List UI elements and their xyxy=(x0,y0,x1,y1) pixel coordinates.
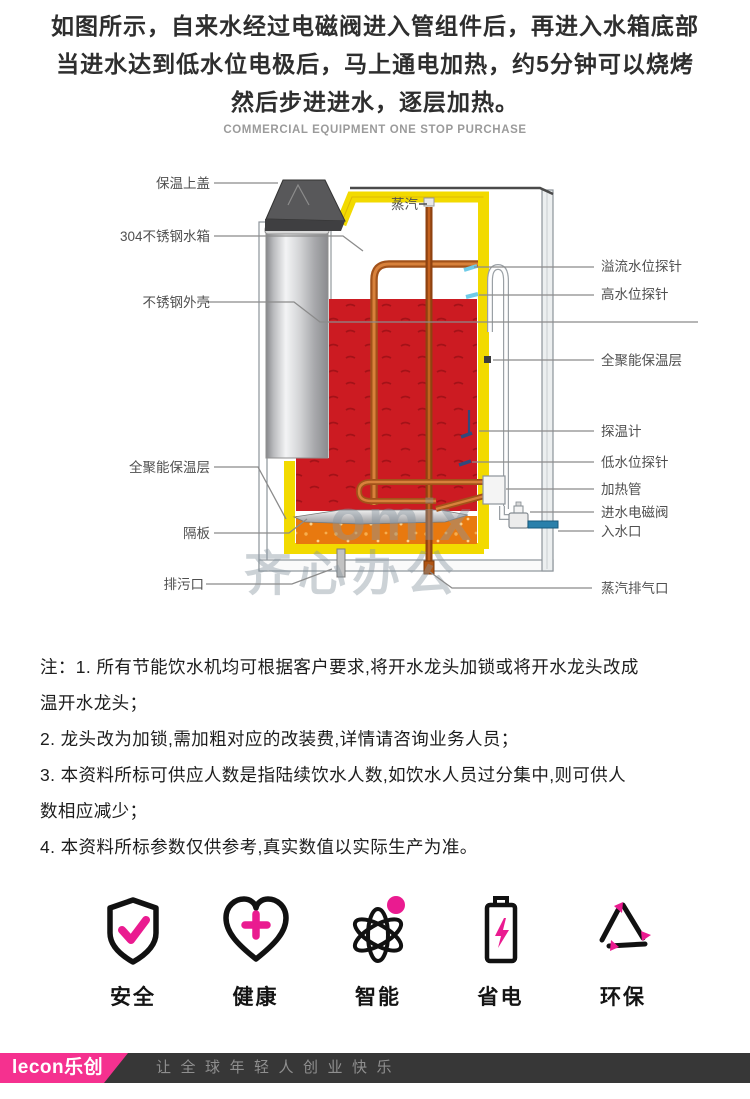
feature-label: 环保 xyxy=(600,981,646,1011)
intro-line-1: 如图所示，自来水经过电磁阀进入管组件后，再进入水箱底部 xyxy=(0,7,750,45)
heart-plus-icon xyxy=(216,891,296,971)
label-304-tank: 304不锈钢水箱 xyxy=(120,229,210,244)
note-line: 注：1. 所有节能饮水机均可根据客户要求,将开水龙头加锁或将开水龙头改成 xyxy=(40,649,710,685)
atom-icon xyxy=(338,891,418,971)
feature-safety: 安全 xyxy=(78,891,188,1011)
intro-subtitle: COMMERCIAL EQUIPMENT ONE STOP PURCHASE xyxy=(0,124,750,136)
footer-brand-bar: lecon乐创 让全球年轻人创业快乐 xyxy=(0,1053,750,1083)
product-detail-page: 如图所示，自来水经过电磁阀进入管组件后，再进入水箱底部 当进水达到低水位电极后，… xyxy=(0,0,750,1099)
intro-line-2: 当进水达到低水位电极后，马上通电加热，约5分钟可以烧烤 xyxy=(0,45,750,83)
battery-bolt-icon xyxy=(461,891,541,971)
lecon-logo: lecon乐创 xyxy=(0,1053,132,1083)
notes-block: 注：1. 所有节能饮水机均可根据客户要求,将开水龙头加锁或将开水龙头改成 温开水… xyxy=(0,649,750,865)
label-heating-tube: 加热管 xyxy=(601,482,642,497)
intro-text-block: 如图所示，自来水经过电磁阀进入管组件后，再进入水箱底部 当进水达到低水位电极后，… xyxy=(0,0,750,140)
label-inlet-valve: 进水电磁阀 xyxy=(601,505,669,520)
label-steam-outlet: 蒸汽排气口 xyxy=(601,581,669,596)
top-cover xyxy=(265,180,345,231)
feature-eco: 环保 xyxy=(568,891,678,1011)
watermark-line1: omix xyxy=(330,488,473,553)
boiler-cutaway-diagram: omix 齐心办公 蒸汽 保温上盖 304不锈钢水箱 xyxy=(0,140,750,635)
label-partition: 隔板 xyxy=(183,526,210,541)
feature-power-saving: 省电 xyxy=(446,891,556,1011)
label-low-level-probe: 低水位探针 xyxy=(601,455,669,470)
label-overflow-probe: 溢流水位探针 xyxy=(601,259,682,274)
label-insulation-right: 全聚能保温层 xyxy=(601,352,682,368)
feature-health: 健康 xyxy=(201,891,311,1011)
label-steam: 蒸汽 xyxy=(391,197,418,212)
overflow-pipe xyxy=(490,267,506,509)
recycle-icon xyxy=(583,891,663,971)
intro-line-3: 然后步进进水，逐层加热。 xyxy=(0,83,750,121)
label-thermometer: 探温计 xyxy=(601,424,642,439)
note-line: 温开水龙头； xyxy=(40,685,710,721)
note-line: 2. 龙头改为加锁,需加粗对应的改装费,详情请咨询业务人员； xyxy=(40,721,710,757)
label-high-level-probe: 高水位探针 xyxy=(601,286,669,302)
stainless-cylinder xyxy=(265,226,329,458)
feature-label: 智能 xyxy=(355,981,401,1011)
label-insulation-left: 全聚能保温层 xyxy=(129,459,210,475)
label-water-inlet: 入水口 xyxy=(601,524,642,539)
shield-check-icon xyxy=(93,891,173,971)
footer-slogan: 让全球年轻人创业快乐 xyxy=(156,1053,401,1083)
note-line: 3. 本资料所标可供应人数是指陆续饮水人数,如饮水人员过分集中,则可供人 xyxy=(40,757,710,793)
note-line: 4. 本资料所标参数仅供参考,真实数值以实际生产为准。 xyxy=(40,829,710,865)
note-line: 数相应减少； xyxy=(40,793,710,829)
feature-label: 安全 xyxy=(110,981,156,1011)
label-top-cover: 保温上盖 xyxy=(156,176,210,191)
feature-smart: 智能 xyxy=(323,891,433,1011)
watermark-line2: 齐心办公 xyxy=(244,548,460,601)
feature-label: 省电 xyxy=(478,981,524,1011)
feature-label: 健康 xyxy=(233,981,279,1011)
lecon-logo-text: lecon乐创 xyxy=(0,1053,132,1082)
label-drain: 排污口 xyxy=(164,577,205,592)
feature-icons-row: 安全 健康 智能 xyxy=(0,891,750,1011)
label-stainless-shell: 不锈钢外壳 xyxy=(143,295,211,310)
